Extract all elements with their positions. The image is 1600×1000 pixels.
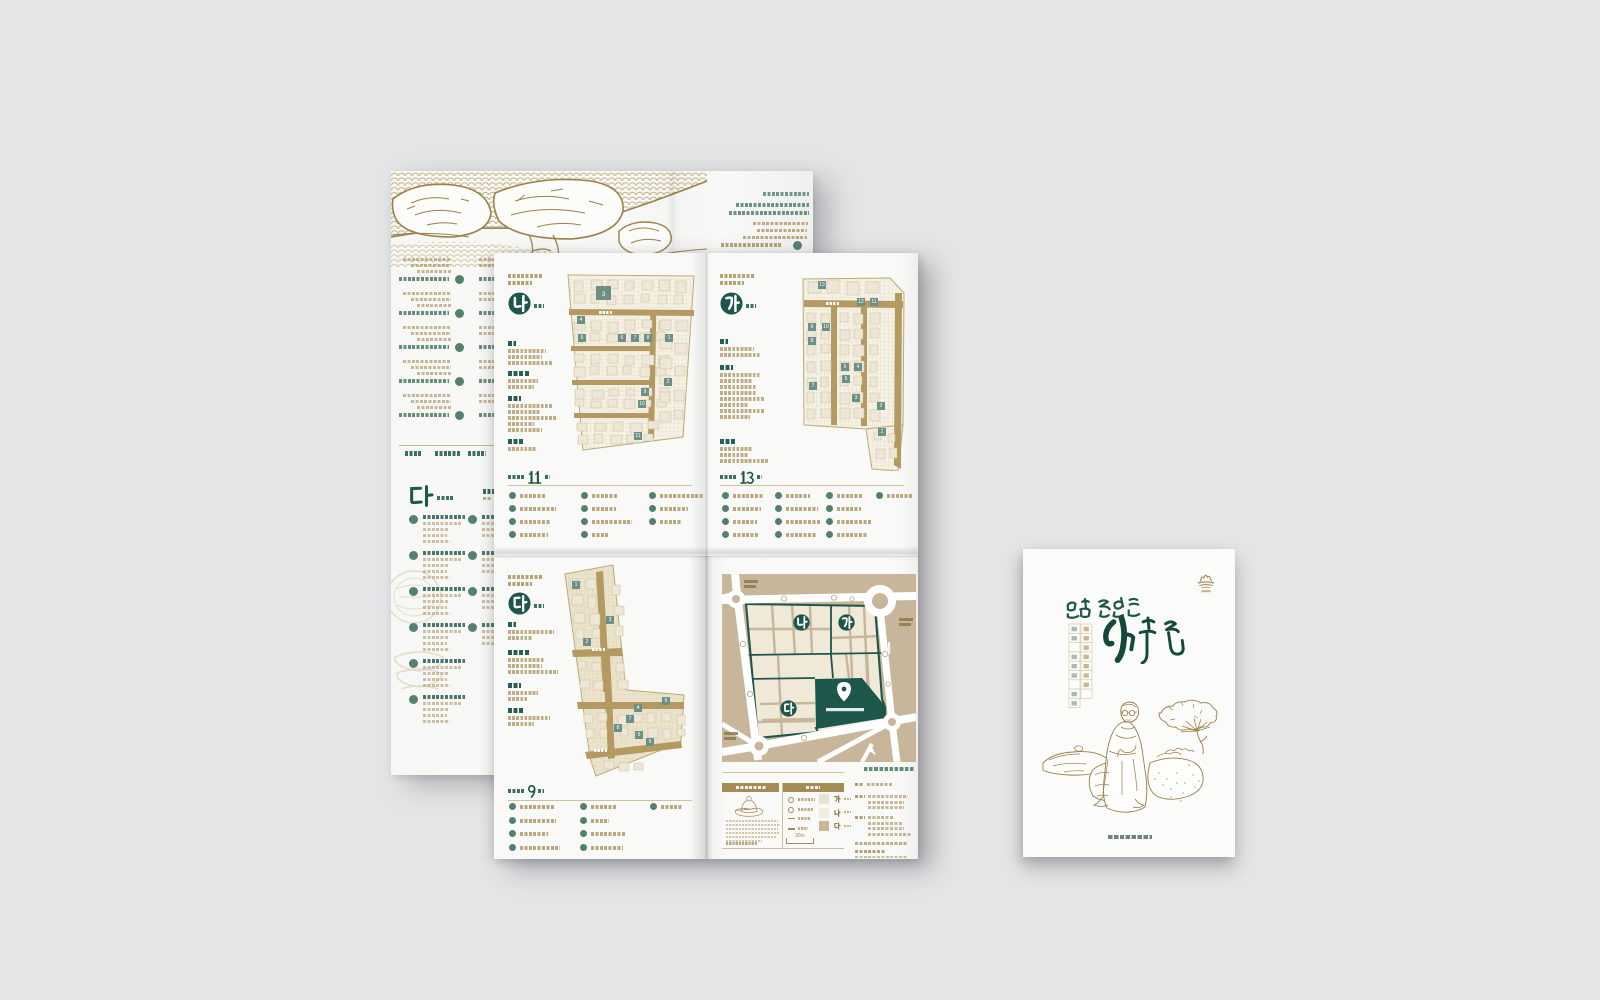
- svg-text:3: 3: [602, 291, 606, 298]
